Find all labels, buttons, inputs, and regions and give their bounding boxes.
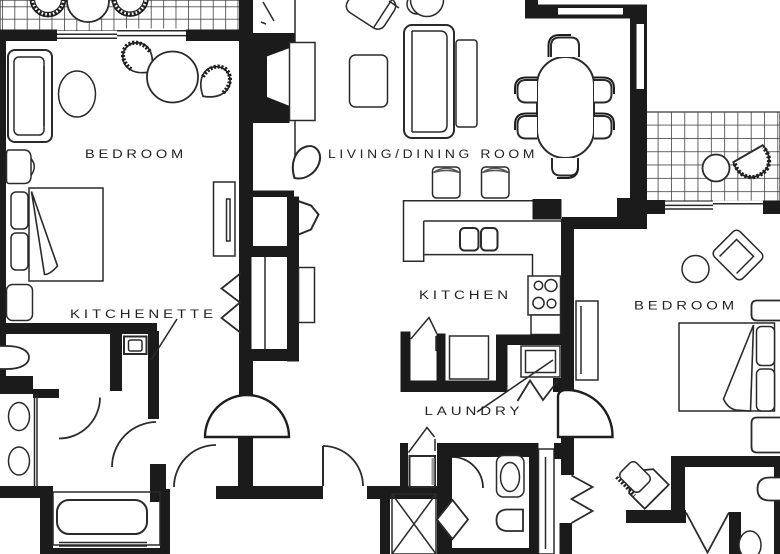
svg-text:BEDROOM: BEDROOM bbox=[634, 301, 738, 313]
svg-text:KITCHENETTE: KITCHENETTE bbox=[70, 309, 217, 321]
svg-text:LIVING/DINING ROOM: LIVING/DINING ROOM bbox=[328, 149, 538, 161]
svg-text:BEDROOM: BEDROOM bbox=[85, 149, 187, 161]
svg-text:KITCHEN: KITCHEN bbox=[419, 290, 512, 302]
svg-text:LAUNDRY: LAUNDRY bbox=[425, 406, 524, 418]
